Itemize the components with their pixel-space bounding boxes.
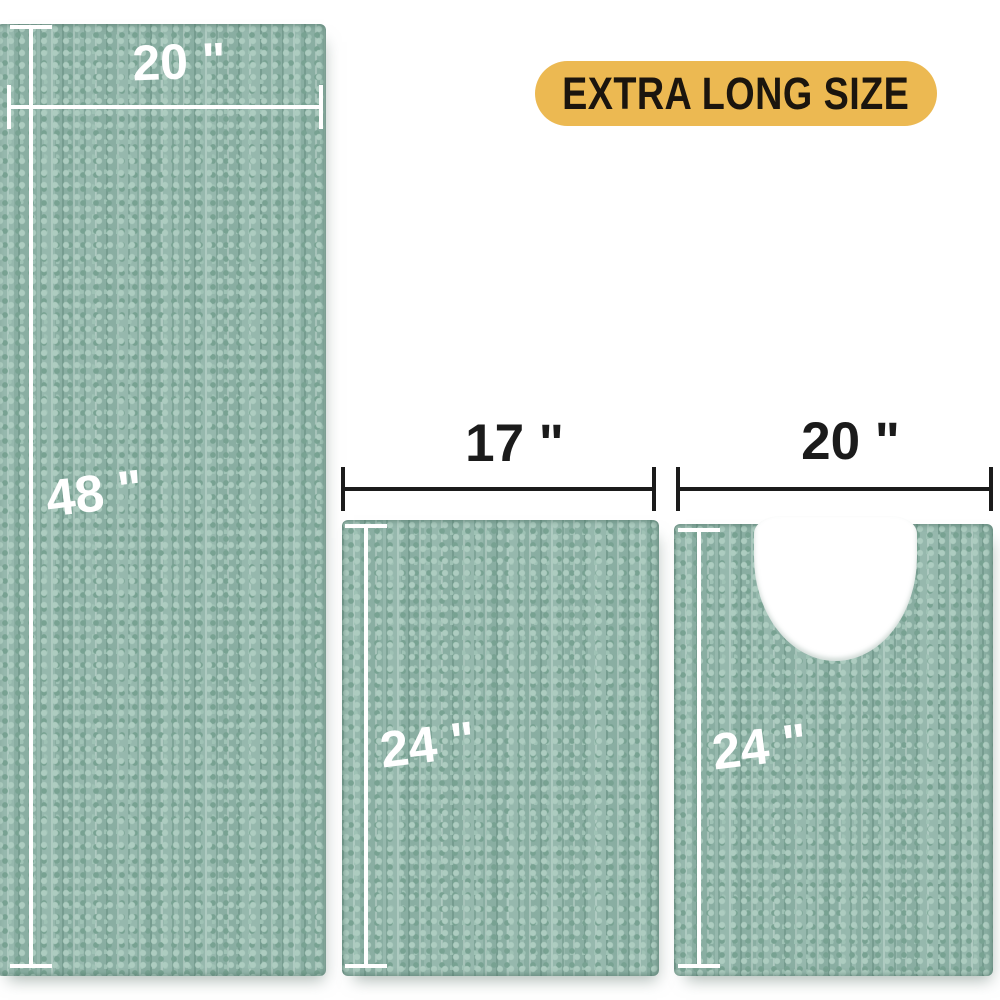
contour-mat-width-label: 20 " — [677, 415, 1000, 468]
extra-long-size-badge: EXTRA LONG SIZE — [535, 61, 937, 126]
bath-mat-length-label: 24 " — [377, 713, 478, 775]
contour-mat-length-label: 24 " — [709, 715, 810, 777]
runner-length-dimension-line — [29, 26, 33, 967]
runner-length-label: 48 " — [43, 462, 146, 525]
contour-mat-length-dimension-line — [697, 529, 701, 967]
product-image-canvas: EXTRA LONG SIZE 20 " 48 " 17 " 24 " 20 "… — [0, 0, 1000, 1000]
bath-mat-width-label: 17 " — [342, 417, 671, 470]
runner-width-dimension-line — [8, 105, 322, 109]
bath-mat-width-dimension-line — [342, 487, 655, 491]
bath-mat-length-dimension-line — [364, 525, 368, 967]
toilet-contour-notch — [754, 516, 917, 661]
badge-label: EXTRA LONG SIZE — [562, 68, 909, 120]
contour-mat-width-dimension-line — [677, 487, 992, 491]
